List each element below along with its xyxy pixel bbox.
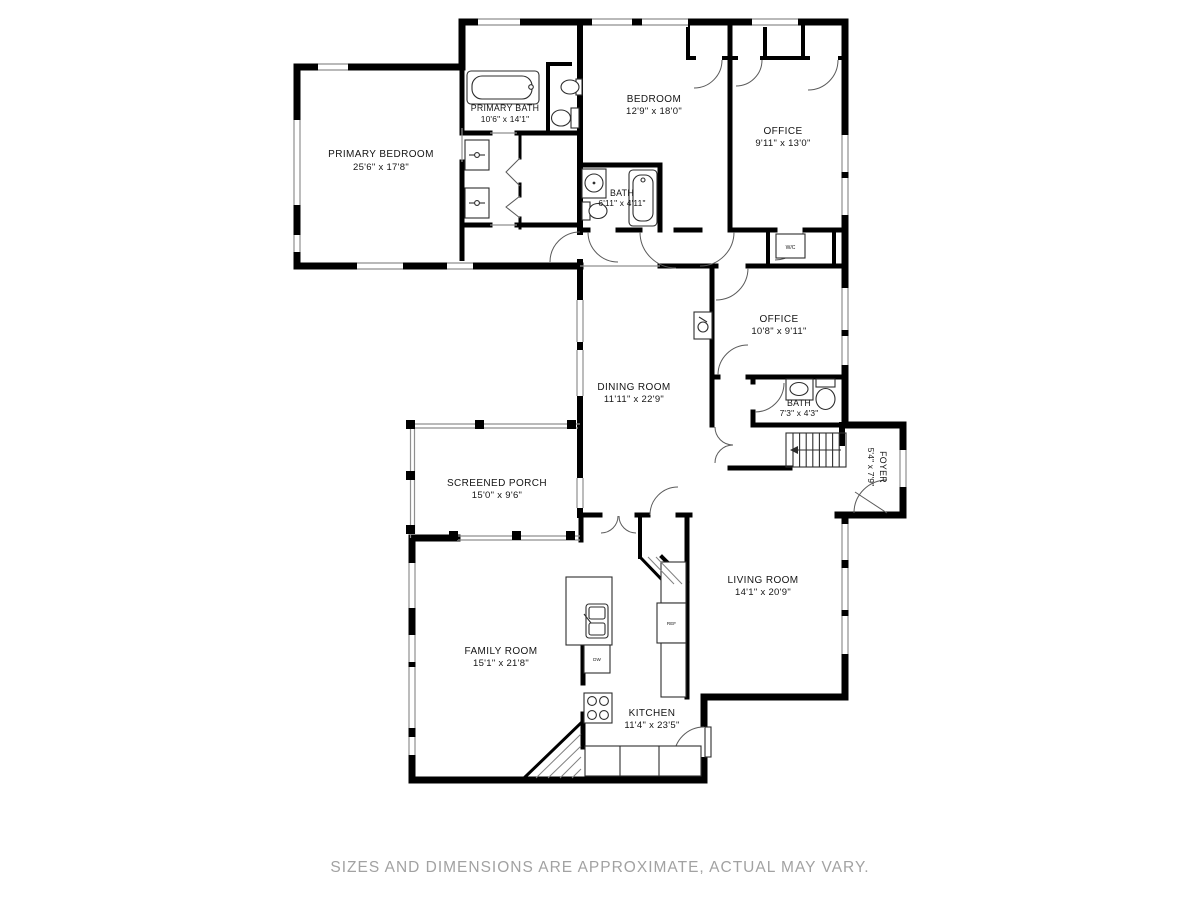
office-mid-dims: 10'8" x 9'11" bbox=[751, 326, 806, 337]
room-small-bath: BATH 7'3" x 4'3" bbox=[780, 398, 819, 418]
wc-label: W/C bbox=[786, 245, 796, 251]
sink-icon bbox=[561, 79, 582, 95]
room-primary-bedroom: PRIMARY BEDROOM 25'6" x 17'8" bbox=[328, 149, 434, 173]
dining-name: DINING ROOM bbox=[597, 382, 670, 393]
sink-icon bbox=[786, 379, 813, 400]
room-dining: DINING ROOM 11'11" x 22'9" bbox=[597, 382, 670, 405]
primary-bath-name: PRIMARY BATH bbox=[471, 103, 540, 113]
staircase bbox=[786, 433, 846, 467]
sink-icon bbox=[582, 169, 606, 198]
room-living: LIVING ROOM 14'1" x 20'9" bbox=[727, 575, 798, 598]
room-primary-bath: PRIMARY BATH 10'6" x 14'1" bbox=[471, 103, 540, 124]
kitchen-dims: 11'4" x 23'5" bbox=[624, 720, 679, 731]
dining-dims: 11'11" x 22'9" bbox=[604, 394, 664, 405]
room-office-mid: OFFICE 10'8" x 9'11" bbox=[751, 314, 806, 337]
family-dims: 15'1" x 21'8" bbox=[473, 658, 529, 669]
sink-icon bbox=[694, 312, 712, 339]
ref-label: REF bbox=[667, 621, 676, 626]
room-foyer: FOYER 5'4" x 7'9" bbox=[866, 448, 888, 487]
dishwasher: DW bbox=[584, 645, 610, 673]
small-bath-dims: 7'3" x 4'3" bbox=[780, 408, 819, 418]
floor-plan-page: W/C DW bbox=[0, 0, 1200, 900]
stairs-direction-arrow-icon bbox=[790, 446, 798, 454]
closet-rod-icon bbox=[465, 140, 489, 218]
foyer-dims: 5'4" x 7'9" bbox=[866, 448, 876, 487]
wc-fixture: W/C bbox=[776, 234, 805, 258]
porch-name: SCREENED PORCH bbox=[447, 478, 547, 489]
room-family: FAMILY ROOM 15'1" x 21'8" bbox=[465, 646, 538, 669]
office-mid-name: OFFICE bbox=[759, 314, 798, 325]
stove-icon bbox=[584, 693, 612, 723]
family-name: FAMILY ROOM bbox=[465, 646, 538, 657]
porch-dims: 15'0" x 9'6" bbox=[472, 490, 522, 501]
hall-bath-dims: 6'11" x 4'11" bbox=[598, 198, 645, 208]
room-office-top: OFFICE 9'11" x 13'0" bbox=[755, 126, 810, 149]
kitchen-island bbox=[566, 577, 612, 645]
bedroom-name: BEDROOM bbox=[627, 94, 681, 105]
floor-plan: W/C DW bbox=[0, 0, 1200, 900]
dw-label: DW bbox=[593, 657, 601, 662]
fireplace bbox=[536, 734, 581, 778]
primary-bedroom-dims: 25'6" x 17'8" bbox=[353, 162, 409, 173]
bedroom-dims: 12'9" x 18'0" bbox=[626, 106, 682, 117]
small-bath-name: BATH bbox=[787, 398, 811, 408]
disclaimer-text: SIZES AND DIMENSIONS ARE APPROXIMATE, AC… bbox=[330, 859, 869, 876]
office-top-dims: 9'11" x 13'0" bbox=[755, 138, 810, 149]
toilet-icon bbox=[552, 108, 580, 128]
room-kitchen: KITCHEN 11'4" x 23'5" bbox=[624, 708, 679, 731]
living-dims: 14'1" x 20'9" bbox=[735, 587, 791, 598]
room-bedroom: BEDROOM 12'9" x 18'0" bbox=[626, 94, 682, 117]
primary-bath-dims: 10'6" x 14'1" bbox=[481, 114, 530, 124]
bathtub-icon bbox=[467, 71, 539, 104]
foyer-name: FOYER bbox=[878, 451, 888, 483]
room-screened-porch: SCREENED PORCH 15'0" x 9'6" bbox=[447, 478, 547, 501]
living-name: LIVING ROOM bbox=[727, 575, 798, 586]
kitchen-name: KITCHEN bbox=[629, 708, 676, 719]
toilet-icon bbox=[816, 379, 835, 410]
hall-bath-name: BATH bbox=[610, 188, 634, 198]
primary-bedroom-name: PRIMARY BEDROOM bbox=[328, 149, 434, 160]
office-top-name: OFFICE bbox=[763, 126, 802, 137]
